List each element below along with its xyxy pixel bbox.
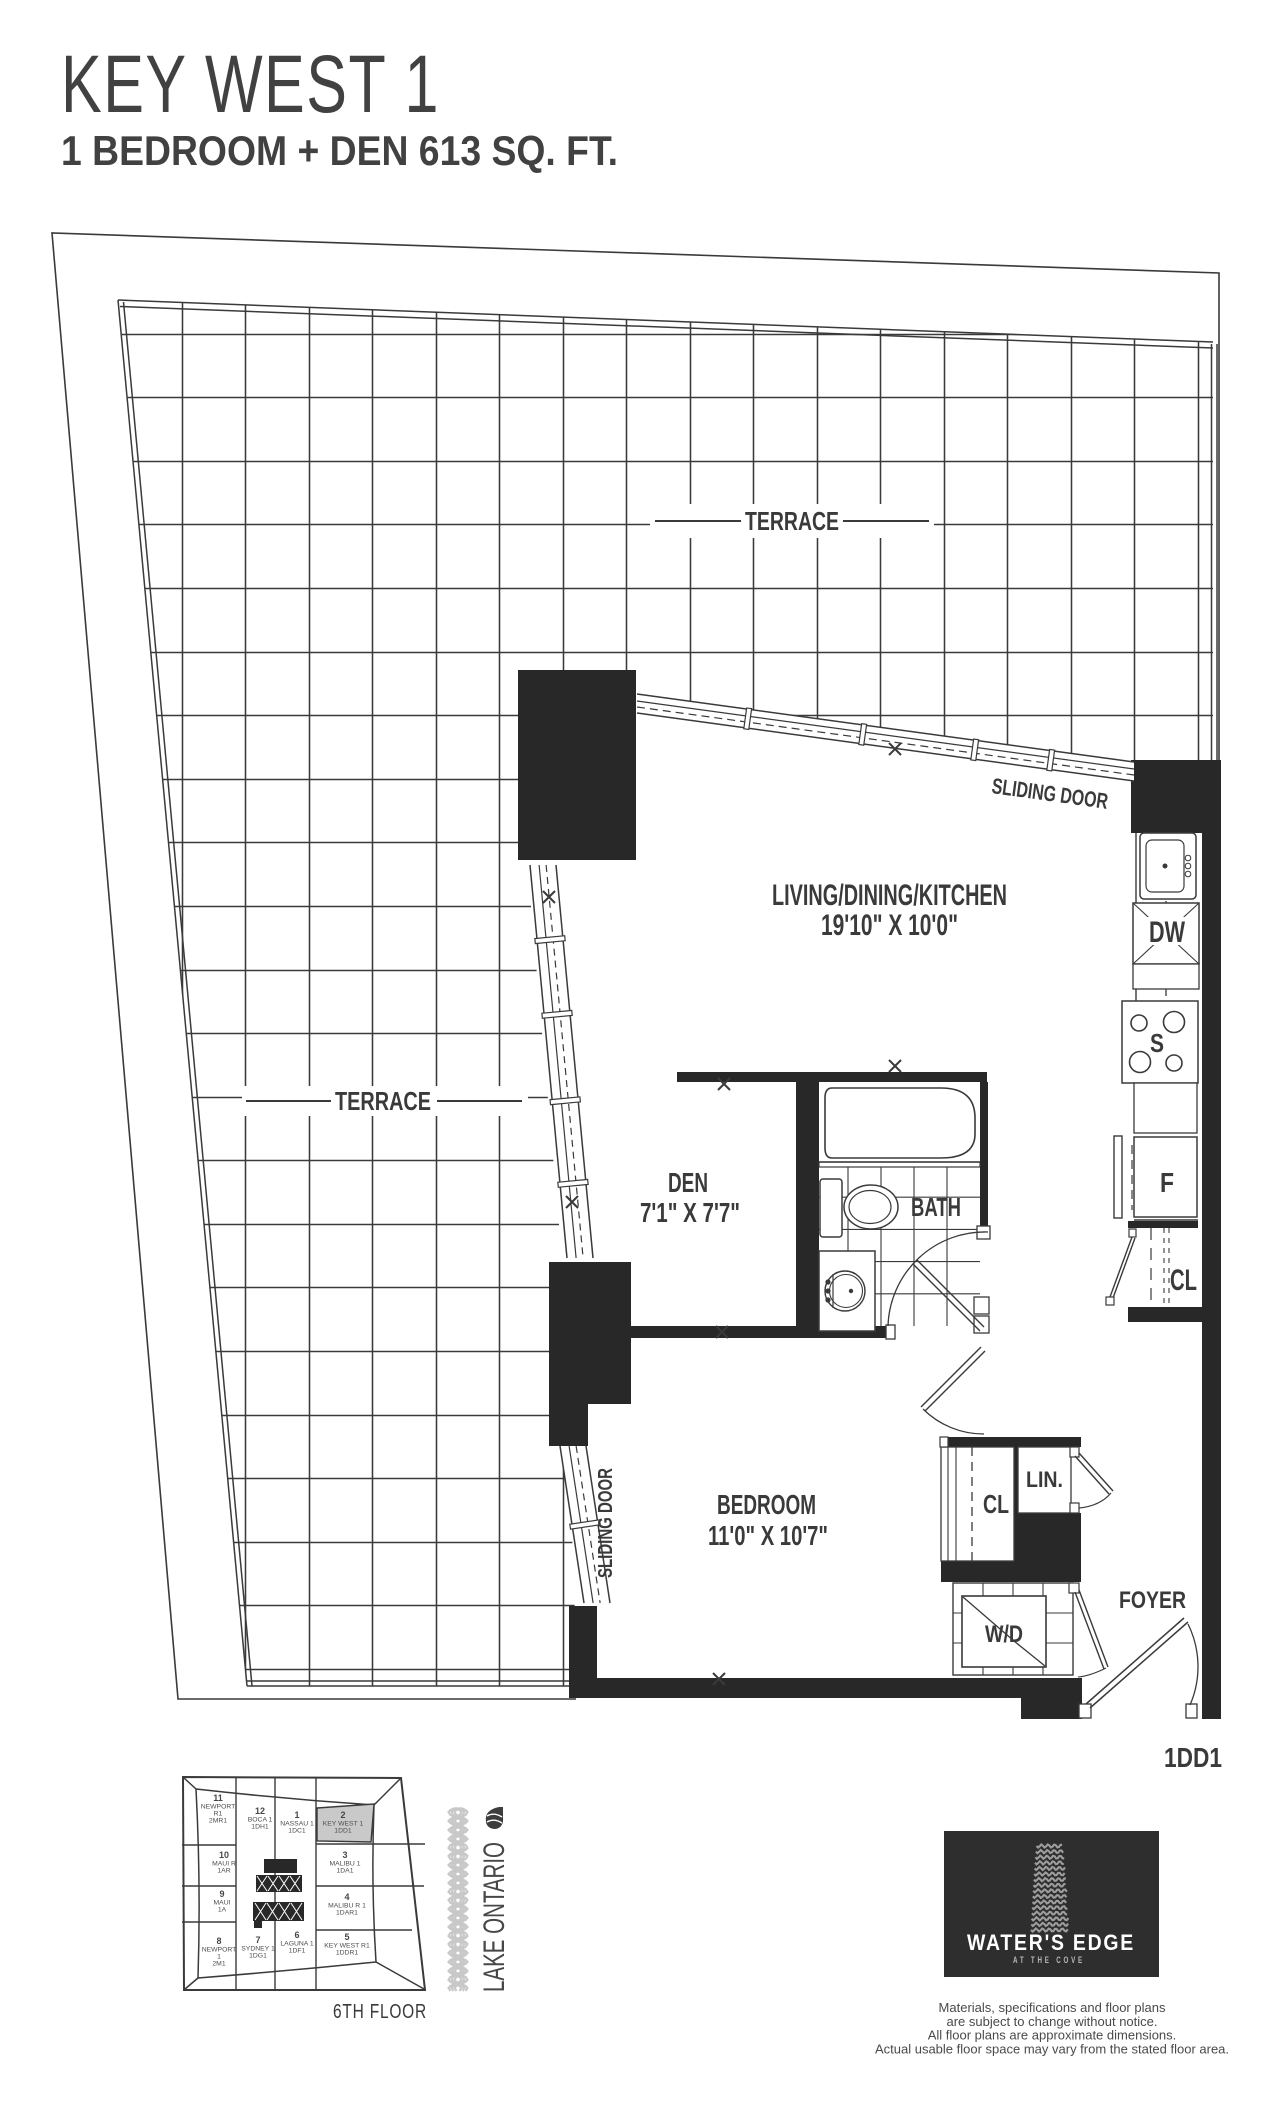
svg-text:MALIBU 1: MALIBU 1: [330, 1861, 361, 1868]
svg-text:NASSAU 1: NASSAU 1: [280, 1821, 314, 1828]
svg-text:FOYER: FOYER: [1119, 1587, 1186, 1614]
svg-text:9: 9: [219, 1889, 224, 1899]
svg-text:1DC1: 1DC1: [288, 1828, 306, 1835]
svg-text:LAGUNA 1: LAGUNA 1: [280, 1941, 313, 1948]
svg-text:1DF1: 1DF1: [289, 1948, 306, 1955]
svg-text:SLIDING DOOR: SLIDING DOOR: [595, 1468, 617, 1578]
svg-text:LAKE ONTARIO: LAKE ONTARIO: [478, 1842, 511, 1992]
svg-text:R1: R1: [214, 1811, 223, 1818]
svg-text:TERRACE: TERRACE: [335, 1086, 431, 1116]
svg-text:1DG1: 1DG1: [249, 1953, 267, 1960]
svg-text:are subject to change without: are subject to change without notice.: [946, 2014, 1157, 2029]
svg-text:CL: CL: [1170, 1264, 1197, 1297]
svg-text:Materials, specifications and: Materials, specifications and floor plan…: [939, 2000, 1166, 2015]
svg-text:SYDNEY 1: SYDNEY 1: [241, 1946, 275, 1953]
svg-text:7: 7: [255, 1935, 260, 1945]
svg-text:MAUI: MAUI: [214, 1900, 231, 1907]
svg-text:2M1: 2M1: [212, 1961, 225, 1968]
svg-text:1A: 1A: [218, 1907, 227, 1914]
svg-text:1: 1: [294, 1810, 299, 1820]
svg-text:11'0" X 10'7": 11'0" X 10'7": [708, 1520, 828, 1551]
svg-text:3: 3: [342, 1850, 347, 1860]
svg-text:BOCA 1: BOCA 1: [248, 1817, 273, 1824]
svg-text:4: 4: [344, 1892, 349, 1902]
svg-text:DW: DW: [1149, 916, 1185, 949]
svg-text:DEN: DEN: [668, 1167, 708, 1198]
svg-text:MALIBU R 1: MALIBU R 1: [328, 1903, 366, 1910]
svg-text:S: S: [1150, 1028, 1164, 1058]
svg-text:12: 12: [255, 1806, 265, 1816]
svg-text:Actual usable floor space may: Actual usable floor space may vary from …: [875, 2041, 1229, 2056]
svg-text:KEY WEST 1: KEY WEST 1: [61, 39, 440, 130]
svg-text:1DD1: 1DD1: [1164, 1742, 1222, 1773]
svg-text:BATH: BATH: [911, 1192, 961, 1222]
svg-text:NEWPORT: NEWPORT: [202, 1947, 237, 1954]
svg-text:7'1" X 7'7": 7'1" X 7'7": [640, 1197, 740, 1228]
svg-text:F: F: [1160, 1167, 1174, 1198]
svg-text:1 BEDROOM + DEN 613 SQ. FT.: 1 BEDROOM + DEN 613 SQ. FT.: [61, 127, 618, 174]
svg-text:1: 1: [217, 1954, 221, 1961]
svg-text:MAUI R: MAUI R: [212, 1861, 236, 1868]
svg-text:TERRACE: TERRACE: [745, 506, 839, 536]
svg-text:WATER'S EDGE: WATER'S EDGE: [967, 1930, 1135, 1955]
svg-text:6: 6: [294, 1930, 299, 1940]
svg-text:NEWPORT: NEWPORT: [201, 1804, 236, 1811]
svg-text:LIVING/DINING/KITCHEN: LIVING/DINING/KITCHEN: [772, 879, 1007, 912]
svg-text:1AR: 1AR: [217, 1868, 230, 1875]
svg-text:6TH FLOOR: 6TH FLOOR: [333, 2001, 427, 2023]
svg-text:BEDROOM: BEDROOM: [717, 1489, 816, 1520]
svg-text:5: 5: [344, 1932, 349, 1942]
svg-text:19'10" X 10'0": 19'10" X 10'0": [821, 909, 958, 942]
svg-text:1DH1: 1DH1: [251, 1824, 269, 1831]
svg-text:11: 11: [213, 1793, 223, 1803]
svg-text:1DA1: 1DA1: [336, 1868, 353, 1875]
svg-text:2MR1: 2MR1: [209, 1818, 227, 1825]
svg-text:All floor plans are approximat: All floor plans are approximate dimensio…: [928, 2028, 1177, 2043]
svg-text:W/D: W/D: [985, 1621, 1023, 1648]
svg-text:1DDR1: 1DDR1: [336, 1950, 359, 1957]
svg-text:KEY WEST 1: KEY WEST 1: [323, 1821, 364, 1828]
svg-text:LIN.: LIN.: [1026, 1467, 1063, 1492]
svg-text:AT THE COVE: AT THE COVE: [1013, 1955, 1085, 1965]
svg-text:CL: CL: [983, 1489, 1009, 1519]
svg-text:8: 8: [216, 1936, 221, 1946]
svg-text:1DD1: 1DD1: [334, 1828, 352, 1835]
svg-text:10: 10: [219, 1850, 229, 1860]
svg-text:2: 2: [340, 1810, 345, 1820]
svg-text:KEY WEST R1: KEY WEST R1: [324, 1943, 370, 1950]
svg-text:1DAR1: 1DAR1: [336, 1910, 358, 1917]
